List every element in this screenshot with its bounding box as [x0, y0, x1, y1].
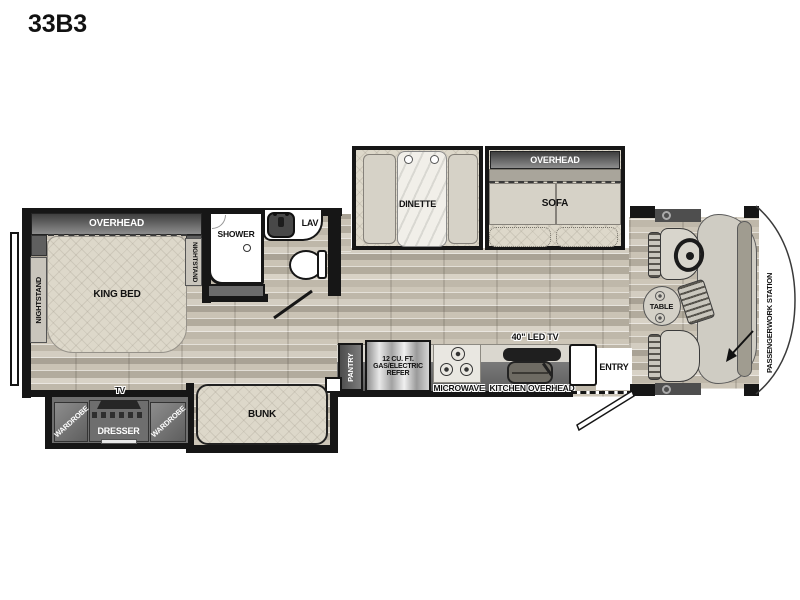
- cab-corner-tl: [630, 206, 655, 218]
- shower-base-cabinet: [207, 284, 265, 298]
- bedroom-slide-rail: [10, 232, 19, 386]
- cab-corner-br: [744, 384, 759, 396]
- dresser-label: DRESSER: [97, 427, 139, 436]
- shower-corner-shelf: [212, 215, 226, 229]
- dashboard-strip: [737, 221, 752, 377]
- wardrobe-right: WARDROBE: [150, 402, 186, 442]
- wardrobe-left: WARDROBE: [54, 402, 88, 442]
- sofa-ottoman-right: [556, 227, 618, 247]
- entry-step: [569, 344, 597, 386]
- wall-bath-right: [328, 208, 341, 296]
- refrigerator-label-2: GAS/ELECTRIC: [373, 363, 423, 370]
- cupholder: [404, 155, 413, 164]
- nightstand-left: NIGHTSTAND: [30, 257, 47, 343]
- workstation-label-2: WORK STATION: [766, 273, 774, 328]
- cab-corner-tr: [744, 206, 759, 218]
- sofa-overhead-label: OVERHEAD: [530, 156, 579, 165]
- cupholder: [430, 155, 439, 164]
- nightstand-left-label: NIGHTSTAND: [35, 277, 43, 324]
- refrigerator-label-3: REFER: [373, 370, 423, 377]
- king-bed-label: KING BED: [93, 290, 140, 300]
- entry-label: ENTRY: [599, 363, 628, 372]
- dinette-label: DINETTE: [399, 200, 436, 209]
- dresser-drawer-pulls: [92, 412, 145, 418]
- wall-bunk-right: [330, 390, 338, 453]
- dinette-slide: DINETTE: [352, 146, 483, 250]
- speaker-icon: [662, 211, 671, 220]
- sofa-label: SOFA: [542, 199, 568, 209]
- cab-header-band: [655, 209, 701, 222]
- shower-label: SHOWER: [217, 230, 254, 239]
- cab-table: TABLE: [643, 286, 681, 326]
- passenger-seat-cushion: [660, 330, 700, 382]
- passenger-seat: [646, 328, 706, 386]
- refrigerator: 12 CU. FT. GAS/ELECTRIC REFER: [365, 340, 431, 392]
- bunk-label: BUNK: [248, 410, 276, 420]
- sofa-overhead-cabinet: OVERHEAD: [490, 151, 620, 169]
- lav-label: LAV: [302, 219, 319, 228]
- cab-table-label: TABLE: [650, 303, 673, 311]
- dresser-tv: [97, 400, 141, 409]
- refrigerator-label-1: 12 CU. FT.: [373, 356, 423, 363]
- cupholder: [655, 291, 665, 301]
- bedroom-tv-label: TV: [115, 387, 125, 395]
- floorplan-33b3: 33B3 OVERHEAD KING BED NIGHTSTAND NIGHTS…: [0, 0, 800, 600]
- speaker-icon: [662, 385, 671, 394]
- page-title: 33B3: [28, 12, 87, 37]
- lav-sink: [267, 212, 295, 238]
- wall-bunk-bottom: [186, 445, 338, 453]
- shower-stall: SHOWER: [208, 211, 264, 285]
- wardrobe-left-label: WARDROBE: [53, 405, 90, 439]
- bedroom-overhead-cabinet: OVERHEAD: [31, 213, 202, 235]
- bedroom-cabinet-left: [31, 235, 47, 256]
- shower-drain: [243, 244, 251, 252]
- workstation-callout: PASSENGER WORK STATION: [757, 280, 783, 366]
- bunk-bed: BUNK: [196, 384, 328, 445]
- cupholder: [655, 313, 665, 323]
- entry-wall-dashed: [571, 391, 633, 394]
- bedroom-overhead-label: OVERHEAD: [89, 219, 144, 229]
- steering-hub: [686, 252, 694, 260]
- utility-box: [325, 377, 342, 393]
- stove-burner: [460, 363, 473, 376]
- stove-burner: [451, 347, 465, 361]
- toilet-tank: [317, 250, 327, 279]
- nightstand-right-label: NIGHTSTAND: [190, 242, 197, 282]
- workstation-label-1: PASSENGER: [766, 328, 774, 373]
- sofa-ottoman-left: [489, 227, 551, 247]
- dresser-base-slot: [101, 439, 137, 444]
- wardrobe-right-label: WARDROBE: [150, 405, 187, 439]
- king-bed: KING BED: [47, 236, 187, 353]
- stove-counter: [433, 344, 481, 383]
- sofa-slide: OVERHEAD SOFA: [485, 146, 625, 250]
- dresser: DRESSER: [89, 400, 149, 442]
- pantry-label: PANTRY: [347, 353, 355, 382]
- led-tv-label: 40" LED TV: [512, 333, 559, 342]
- stove-burner: [440, 363, 453, 376]
- kitchen-overhead-label: KITCHEN OVERHEAD: [489, 384, 574, 393]
- nightstand-right: NIGHTSTAND: [185, 238, 202, 286]
